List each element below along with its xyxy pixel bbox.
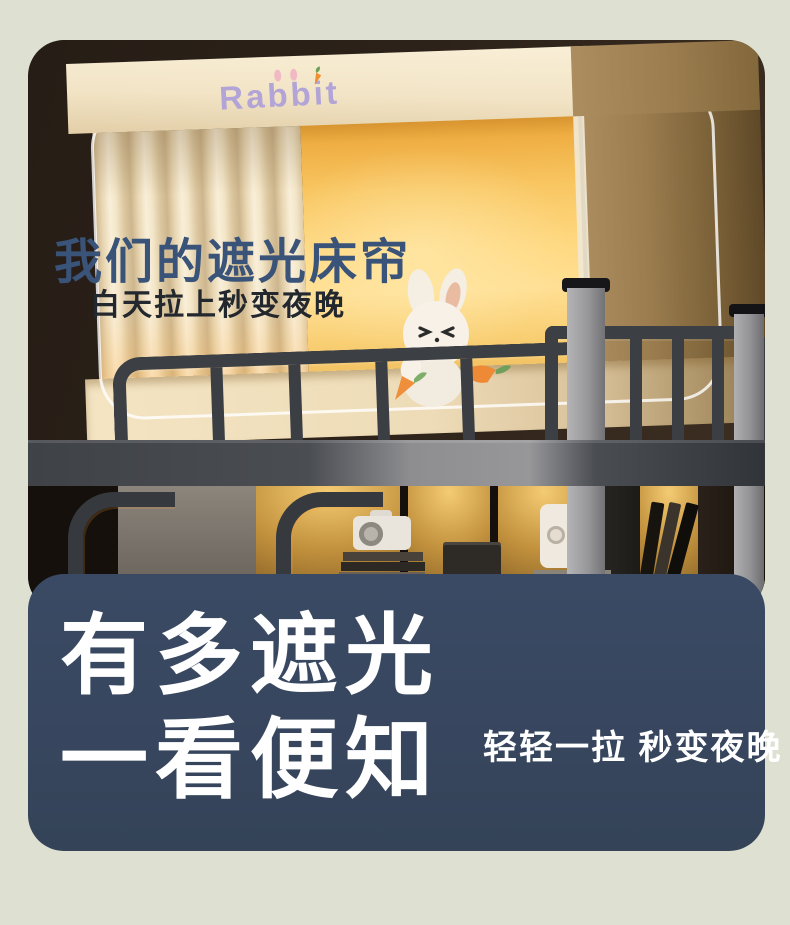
banner-caption: 轻轻一拉 秒变夜晚 [483, 720, 782, 769]
product-photo-card: Rabbit 我们的遮光床帘 白天拉上秒变夜晚 [28, 40, 765, 612]
bed-frame-rail [28, 440, 765, 486]
photo-subheadline: 白天拉上秒变夜晚 [90, 280, 346, 324]
bed-top-side-panel [571, 40, 760, 116]
marketing-banner: 有多遮光 一看便知 轻轻一拉 秒变夜晚 [28, 574, 765, 851]
carrot-icon [310, 66, 324, 86]
banner-title-line1: 有多遮光 [60, 604, 440, 708]
banner-title: 有多遮光 一看便知 [60, 604, 440, 812]
banner-title-line2: 一看便知 [60, 708, 440, 812]
promo-page: Rabbit 我们的遮光床帘 白天拉上秒变夜晚 [0, 0, 790, 925]
speaker-circle [547, 526, 565, 544]
brand-logo: Rabbit [218, 73, 340, 117]
